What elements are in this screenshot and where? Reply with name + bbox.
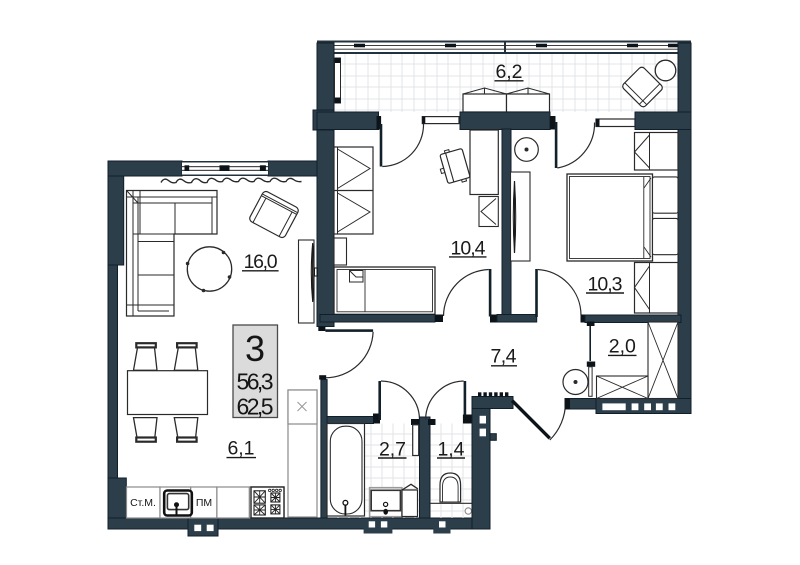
- svg-text:Ст.М.: Ст.М.: [130, 497, 156, 509]
- svg-text:16,0: 16,0: [244, 251, 278, 273]
- svg-text:2,7: 2,7: [379, 438, 406, 460]
- svg-text:62,5: 62,5: [237, 394, 274, 420]
- svg-text:3: 3: [245, 328, 265, 369]
- svg-text:ПМ: ПМ: [196, 497, 212, 509]
- svg-text:7,4: 7,4: [491, 346, 517, 368]
- svg-text:6,2: 6,2: [496, 61, 523, 83]
- svg-text:56,3: 56,3: [237, 369, 274, 395]
- svg-text:2,0: 2,0: [609, 336, 636, 358]
- svg-text:1,4: 1,4: [438, 438, 465, 460]
- svg-text:6,1: 6,1: [228, 438, 255, 460]
